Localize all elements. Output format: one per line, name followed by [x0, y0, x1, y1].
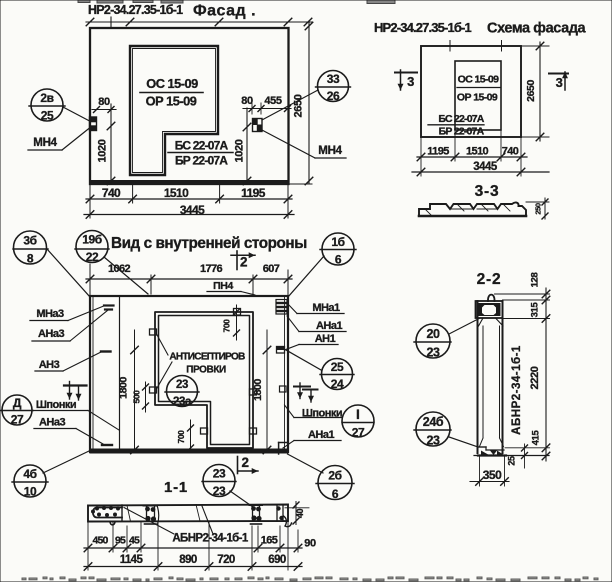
svg-text:БР 22-07А: БР 22-07А [439, 126, 485, 138]
svg-text:АНа1: АНа1 [308, 429, 335, 441]
svg-text:90: 90 [304, 538, 316, 550]
svg-text:ОР 15-09: ОР 15-09 [457, 92, 498, 104]
svg-text:8: 8 [27, 251, 34, 265]
svg-text:25: 25 [41, 108, 54, 122]
svg-text:24: 24 [331, 377, 344, 391]
svg-text:19б: 19б [82, 233, 102, 247]
svg-text:95: 95 [115, 535, 126, 547]
svg-text:25: 25 [331, 360, 344, 374]
svg-text:АБНР2-34-1б-1: АБНР2-34-1б-1 [511, 345, 523, 435]
svg-text:АНа3: АНа3 [39, 417, 66, 429]
svg-text:1510: 1510 [466, 146, 489, 158]
svg-text:Фасад .: Фасад . [193, 3, 256, 20]
svg-text:ОР 15-09: ОР 15-09 [146, 94, 197, 109]
svg-text:128: 128 [530, 273, 541, 288]
svg-text:740: 740 [502, 146, 519, 158]
svg-text:23а: 23а [173, 396, 192, 408]
svg-text:3445: 3445 [473, 161, 498, 173]
svg-text:250: 250 [534, 203, 543, 215]
svg-text:23: 23 [213, 467, 226, 481]
svg-text:Д: Д [13, 396, 22, 410]
svg-text:45: 45 [129, 535, 140, 547]
svg-text:2220: 2220 [529, 366, 541, 389]
svg-text:700: 700 [222, 319, 232, 333]
svg-text:690: 690 [268, 554, 286, 566]
svg-text:Шпонки: Шпонки [36, 399, 76, 411]
svg-text:АНа1: АНа1 [316, 320, 343, 332]
svg-text:165: 165 [261, 535, 278, 547]
svg-text:607: 607 [263, 263, 280, 275]
svg-text:4б: 4б [23, 467, 36, 481]
svg-text:40: 40 [295, 509, 305, 519]
svg-text:350: 350 [483, 468, 502, 482]
svg-text:I: I [356, 406, 360, 422]
svg-text:3: 3 [407, 74, 414, 89]
svg-text:АН1: АН1 [315, 333, 336, 345]
svg-text:БР 22-07А: БР 22-07А [175, 154, 228, 168]
svg-text:Схема фасада: Схема фасада [487, 21, 587, 37]
svg-text:1-1: 1-1 [164, 479, 188, 496]
svg-text:ПН4: ПН4 [213, 280, 233, 292]
svg-text:1195: 1195 [427, 146, 449, 158]
svg-text:740: 740 [102, 186, 121, 200]
svg-text:МН4: МН4 [318, 145, 342, 157]
svg-text:3: 3 [556, 75, 563, 90]
svg-text:23: 23 [426, 345, 440, 359]
svg-text:НР2-34.27.35-1б-1: НР2-34.27.35-1б-1 [88, 3, 183, 17]
svg-text:27: 27 [352, 426, 365, 440]
svg-text:23: 23 [426, 433, 440, 447]
svg-text:890: 890 [179, 554, 197, 566]
svg-text:3445: 3445 [180, 203, 205, 217]
svg-text:1776: 1776 [200, 263, 223, 275]
svg-text:6: 6 [335, 252, 342, 266]
svg-text:2: 2 [241, 455, 248, 470]
svg-text:450: 450 [92, 535, 108, 547]
svg-text:1510: 1510 [164, 186, 189, 200]
svg-text:МНа3: МНа3 [36, 308, 64, 320]
svg-text:ОС 15-09: ОС 15-09 [458, 74, 499, 86]
svg-text:1020: 1020 [234, 139, 246, 162]
svg-text:МН4: МН4 [33, 137, 57, 149]
svg-text:БС 22-07А: БС 22-07А [438, 113, 484, 125]
svg-text:БС 22-07А: БС 22-07А [175, 139, 229, 153]
svg-text:80: 80 [241, 95, 253, 107]
svg-text:1145: 1145 [120, 554, 144, 566]
svg-text:1195: 1195 [241, 186, 266, 200]
svg-text:МНа1: МНа1 [312, 302, 340, 314]
svg-text:2650: 2650 [525, 80, 537, 102]
svg-text:3б: 3б [23, 234, 36, 248]
svg-text:2: 2 [240, 255, 247, 270]
svg-text:24б: 24б [423, 415, 444, 429]
svg-text:20: 20 [426, 327, 440, 341]
svg-text:АНТИСЕПТИРОВ: АНТИСЕПТИРОВ [169, 352, 245, 363]
svg-text:1800: 1800 [252, 379, 264, 401]
svg-text:2650: 2650 [293, 94, 305, 117]
svg-text:33: 33 [327, 72, 340, 86]
svg-text:26: 26 [327, 89, 340, 103]
svg-text:АНа3: АНа3 [38, 328, 65, 340]
svg-text:1б: 1б [331, 235, 344, 249]
svg-text:720: 720 [217, 554, 235, 566]
svg-text:АБНР2-34-1б-1: АБНР2-34-1б-1 [172, 533, 249, 545]
svg-text:2-2: 2-2 [477, 271, 502, 288]
svg-text:НР2-34.27.35-1б-1: НР2-34.27.35-1б-1 [374, 20, 472, 35]
svg-text:25: 25 [507, 456, 517, 466]
svg-text:3-3: 3-3 [475, 183, 500, 200]
svg-text:6: 6 [332, 487, 339, 501]
svg-text:500: 500 [132, 390, 142, 404]
svg-text:22: 22 [86, 250, 99, 264]
svg-text:ОС 15-09: ОС 15-09 [146, 76, 198, 91]
svg-text:1800: 1800 [118, 377, 130, 399]
svg-text:23: 23 [213, 484, 226, 498]
svg-text:455: 455 [264, 95, 281, 107]
svg-text:ПРОВКИ: ПРОВКИ [186, 365, 226, 376]
svg-text:1020: 1020 [97, 139, 109, 162]
svg-text:10: 10 [24, 484, 37, 498]
svg-text:АН3: АН3 [39, 359, 60, 371]
svg-text:700: 700 [176, 430, 186, 444]
svg-text:1062: 1062 [108, 263, 131, 275]
svg-text:415: 415 [531, 430, 542, 446]
svg-text:23: 23 [176, 379, 188, 391]
svg-text:2в: 2в [40, 91, 53, 105]
svg-text:Вид с внутренней стороны: Вид с внутренней стороны [111, 235, 307, 252]
svg-text:2б: 2б [328, 469, 341, 483]
svg-text:315: 315 [530, 302, 541, 318]
svg-text:27: 27 [11, 413, 24, 427]
